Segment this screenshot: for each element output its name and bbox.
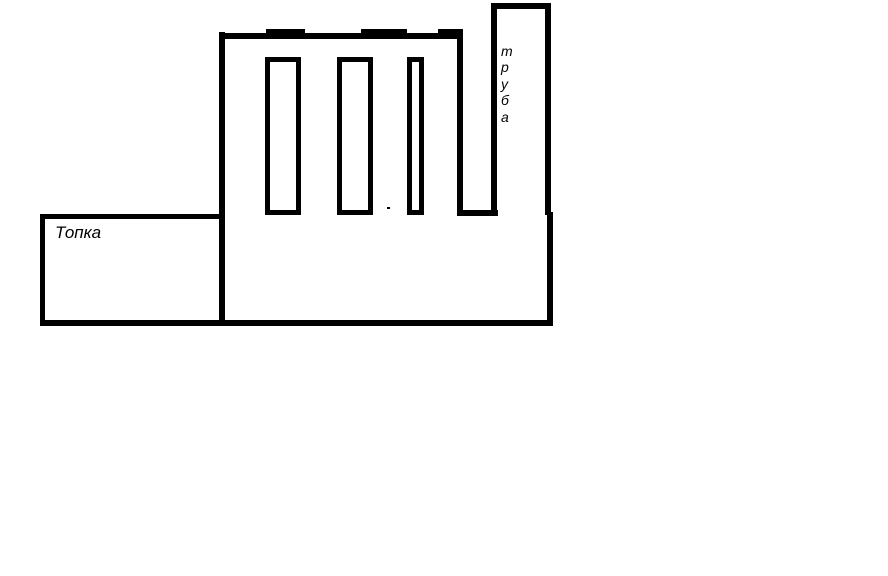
baffle-channel-3	[407, 57, 424, 215]
top-wall-stroke-1	[266, 29, 305, 34]
firebox-label: Топка	[55, 223, 101, 243]
firebox-top-wall	[40, 214, 225, 219]
top-wall-stroke-2	[361, 29, 407, 34]
chimney-top-wall	[491, 3, 551, 9]
chimney-label: труба	[501, 43, 513, 125]
furnace-lower-right-wall	[547, 212, 553, 326]
drawing-canvas: Топка труба	[0, 0, 888, 576]
furnace-right-wall	[457, 33, 463, 215]
chimney-right-wall	[545, 3, 551, 215]
stray-dot	[387, 207, 390, 209]
baffle-channel-1	[265, 57, 301, 215]
furnace-top-wall	[221, 33, 463, 39]
baffle-channel-2	[337, 57, 373, 215]
furnace-bottom-wall	[40, 320, 553, 326]
furnace-left-wall	[219, 32, 225, 326]
firebox-left-wall	[40, 214, 45, 326]
chimney-left-wall	[491, 3, 497, 214]
